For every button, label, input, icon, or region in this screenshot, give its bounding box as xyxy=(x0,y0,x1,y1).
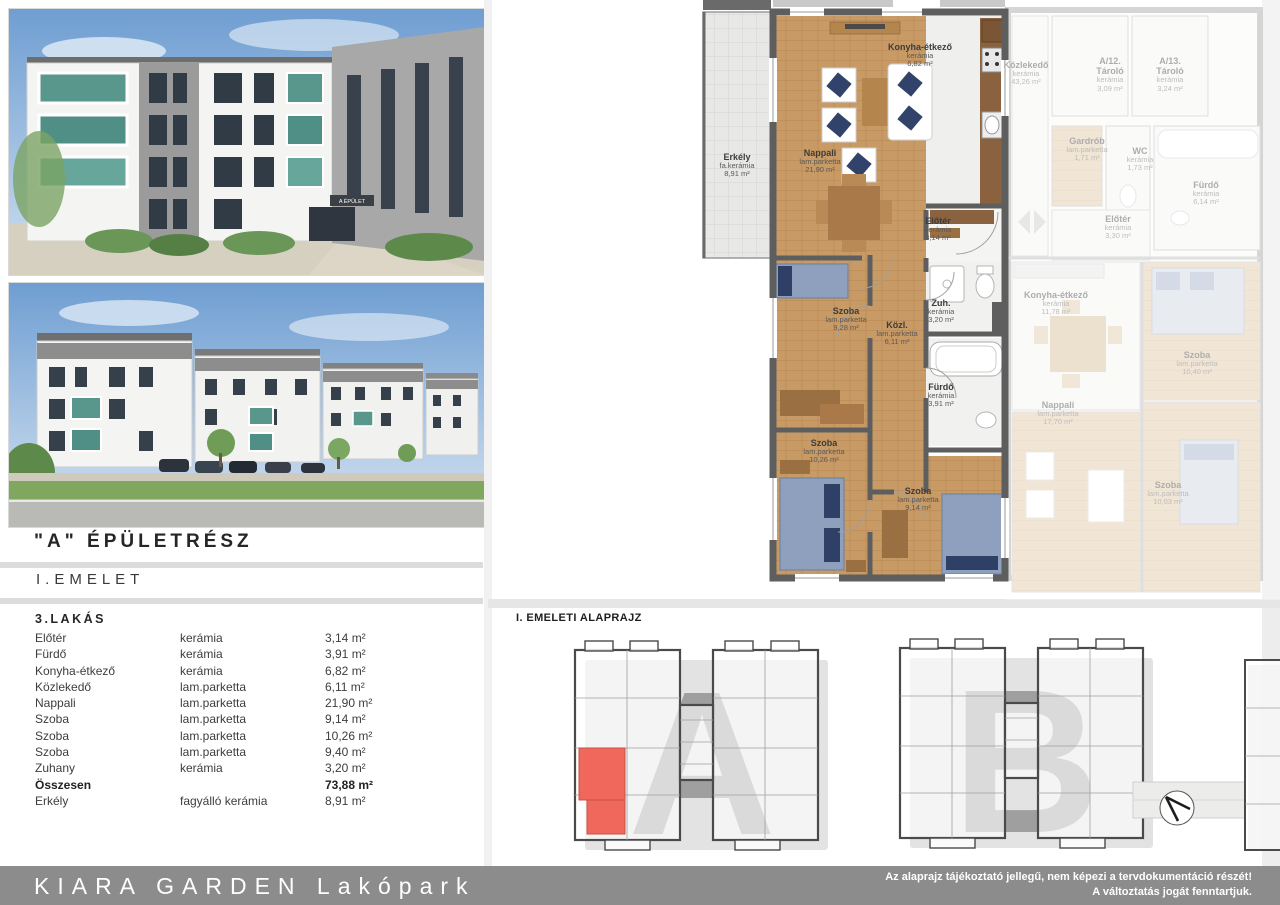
brand-logo-text: KIARA GARDEN Lakópark xyxy=(34,873,476,900)
entrance-sign: A ÉPÜLET xyxy=(339,198,366,205)
adjacent-label-eloter: Előtér kerámia 3,30 m² xyxy=(1105,214,1132,241)
adjacent-label-konyha: Konyha-étkező kerámia 11,78 m² xyxy=(1024,290,1088,317)
apartment-room-table: Előtérkerámia3,14 m² Fürdőkerámia3,91 m²… xyxy=(35,630,465,809)
building-section-heading: "A" ÉPÜLETRÉSZ xyxy=(34,531,253,553)
adjacent-label-gardrob: Gardrób lam.parketta 1,71 m² xyxy=(1066,136,1107,163)
kitchen-fixtures xyxy=(980,18,1004,204)
adjacent-label-szoba-1: Szoba lam.parketta 10,40 m² xyxy=(1176,350,1217,377)
table-row: Szobalam.parketta9,14 m² xyxy=(35,711,465,727)
room-label-eloter: Előtér kerámia 3,14 m² xyxy=(925,216,952,243)
room-label-erkely: Erkély fa.kerámia 8,91 m² xyxy=(719,152,754,179)
divider-line xyxy=(0,598,483,604)
table-row: Előtérkerámia3,14 m² xyxy=(35,630,465,646)
table-row: Zuhanykerámia3,20 m² xyxy=(35,760,465,776)
divider-line xyxy=(0,562,483,568)
adjacent-label-wc: WC kerámia 1,73 m² xyxy=(1127,146,1154,173)
room-label-nappali: Nappali lam.parketta 21,90 m² xyxy=(799,148,840,175)
table-row: Fürdőkerámia3,91 m² xyxy=(35,646,465,662)
table-row-total: Összesen73,88 m² xyxy=(35,777,465,793)
footer-bar: KIARA GARDEN Lakópark Az alaprajz tájéko… xyxy=(0,866,1280,905)
room-label-szoba-2: Szoba lam.parketta 10,26 m² xyxy=(803,438,844,465)
adjacent-label-tarolo-a12: A/12. Tároló kerámia 3,09 m² xyxy=(1096,56,1124,93)
brochure-page: A ÉPÜLET xyxy=(0,0,1280,905)
table-row: Erkélyfagyálló kerámia8,91 m² xyxy=(35,793,465,809)
adjacent-label-nappali: Nappali lam.parketta 17,70 m² xyxy=(1037,400,1078,427)
room-label-konyha: Konyha-étkező kerámia 6,82 m² xyxy=(888,42,952,69)
table-row: Nappalilam.parketta21,90 m² xyxy=(35,695,465,711)
apartment-title: 3.LAKÁS xyxy=(35,612,106,626)
balcony xyxy=(703,12,773,258)
section-divider xyxy=(488,599,1280,608)
table-row: Szobalam.parketta10,26 m² xyxy=(35,728,465,744)
adjacent-label-tarolo-a13: A/13. Tároló kerámia 3,24 m² xyxy=(1156,56,1184,93)
site-plan: A B xyxy=(490,622,1280,866)
table-row: Közlekedőlam.parketta6,11 m² xyxy=(35,679,465,695)
partial-building-plan xyxy=(1245,660,1280,850)
footer-disclaimer: Az alaprajz tájékoztató jellegű, nem kép… xyxy=(885,870,1252,901)
room-label-furdo: Fürdő kerámia 3,91 m² xyxy=(928,382,955,409)
north-arrow-icon xyxy=(1160,791,1194,825)
room-label-kozlekedo: Közl. lam.parketta 6,11 m² xyxy=(876,320,917,347)
adjacent-label-furdo: Fürdő kerámia 6,14 m² xyxy=(1193,180,1220,207)
room-label-szoba-3: Szoba lam.parketta 9,14 m² xyxy=(897,486,938,513)
adjacent-label-szoba-2: Szoba lam.parketta 10,03 m² xyxy=(1147,480,1188,507)
floor-heading: I.EMELET xyxy=(36,571,144,588)
adjacent-label-kozlekedo: Közlekedő kerámia 43,26 m² xyxy=(1003,60,1048,87)
building-render-photo-1: A ÉPÜLET xyxy=(8,8,486,276)
room-label-zuhany: Zuh. kerámia 3,20 m² xyxy=(928,298,955,325)
building-render-photo-2 xyxy=(8,282,486,528)
table-row: Konyha-étkezőkerámia6,82 m² xyxy=(35,663,465,679)
room-label-szoba-1: Szoba lam.parketta 9,28 m² xyxy=(825,306,866,333)
table-row: Szobalam.parketta9,40 m² xyxy=(35,744,465,760)
